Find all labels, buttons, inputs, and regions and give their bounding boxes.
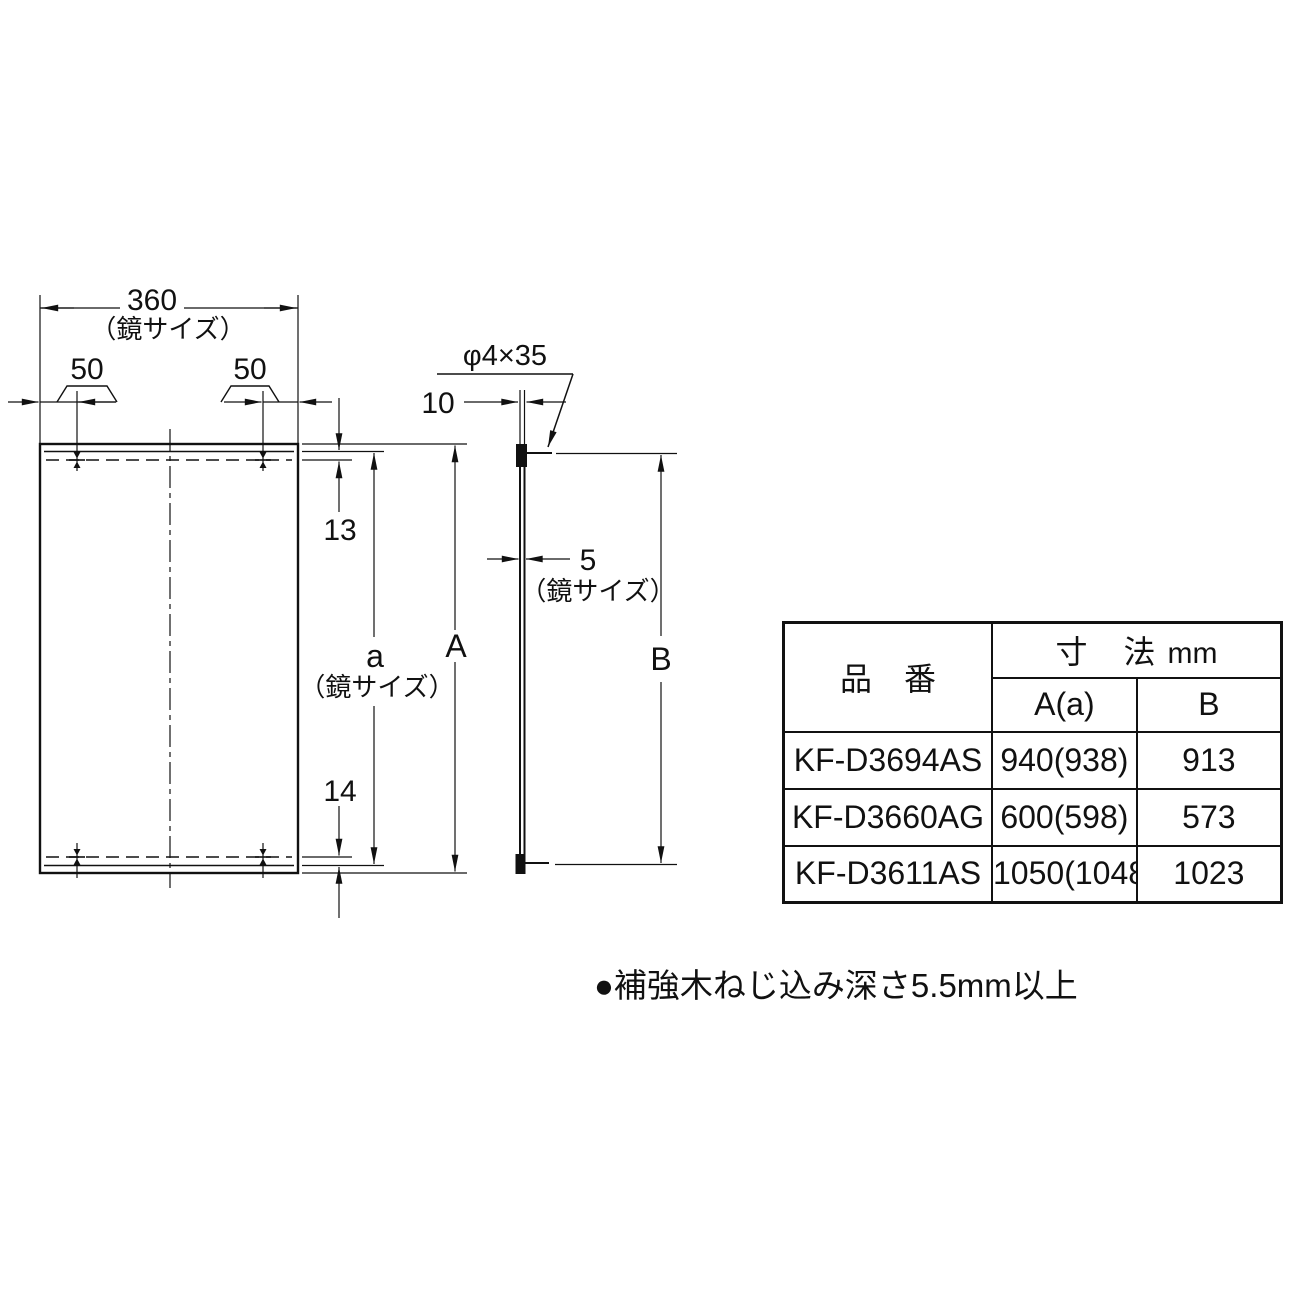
dim-label-bottom-inset: 14 xyxy=(323,775,356,808)
dim-a-value: 940(938) xyxy=(992,732,1137,789)
mount-bracket-top xyxy=(516,444,527,467)
dim-header-label: 寸 法 xyxy=(1056,634,1158,670)
dim-b-value: 913 xyxy=(1137,732,1282,789)
dimension-labels: 360 （鏡サイズ） 50 50 13 14 a （鏡サイズ） A φ4×35 … xyxy=(70,284,675,808)
dim-header-unit: mm xyxy=(1168,637,1218,670)
dim-label-overall-height: A xyxy=(445,628,467,664)
dim-a-value: 1050(1048) xyxy=(992,846,1137,903)
dim-label-glass-height: a xyxy=(366,638,384,674)
dim-a-value: 600(598) xyxy=(992,789,1137,846)
dimension-table: 品 番 寸 法mm A(a) B KF-D3694AS 940(938) 913… xyxy=(782,621,1283,900)
dim-b-value: 1023 xyxy=(1137,846,1282,903)
page: { "front_view": { "width": "360", "width… xyxy=(0,0,1296,1296)
table-row: KF-D3660AG 600(598) 573 xyxy=(784,789,1282,846)
leader-line xyxy=(548,374,573,447)
col-header-b: B xyxy=(1137,678,1282,732)
note-text: ●補強木ねじ込み深さ5.5mm以上 xyxy=(594,966,1078,1006)
dim-label-offset-right: 50 xyxy=(233,353,266,386)
dim-label-projection: 10 xyxy=(421,387,454,420)
dim-b-value: 573 xyxy=(1137,789,1282,846)
screw-mark xyxy=(255,452,271,468)
dim-label-thickness-note: （鏡サイズ） xyxy=(520,576,675,606)
product-code: KF-D3694AS xyxy=(784,732,993,789)
dim-label-top-inset: 13 xyxy=(323,514,356,547)
dim-label-glass-height-note: （鏡サイズ） xyxy=(299,672,454,702)
label-masks xyxy=(120,285,677,700)
dim-label-side-height: B xyxy=(650,641,671,677)
dim-label-width-note: （鏡サイズ） xyxy=(90,314,245,344)
side-view xyxy=(437,374,677,874)
screw-mark xyxy=(69,452,85,468)
product-code: KF-D3660AG xyxy=(784,789,993,846)
mirror-outline xyxy=(40,444,298,873)
table-row: KF-D3694AS 940(938) 913 xyxy=(784,732,1282,789)
front-view xyxy=(8,295,467,918)
dim-label-width: 360 xyxy=(127,284,177,317)
product-code: KF-D3611AS xyxy=(784,846,993,903)
dim-label-thickness: 5 xyxy=(580,544,597,577)
dim-label-offset-left: 50 xyxy=(70,353,103,386)
col-header-a: A(a) xyxy=(992,678,1137,732)
col-header-dimensions: 寸 法mm xyxy=(992,623,1282,678)
mount-bracket-bottom xyxy=(516,854,526,874)
table-row: KF-D3611AS 1050(1048) 1023 xyxy=(784,846,1282,903)
screw-mark xyxy=(255,849,271,865)
dim-label-screw-spec: φ4×35 xyxy=(463,340,547,372)
col-header-product: 品 番 xyxy=(784,623,993,732)
screw-mark xyxy=(69,849,85,865)
